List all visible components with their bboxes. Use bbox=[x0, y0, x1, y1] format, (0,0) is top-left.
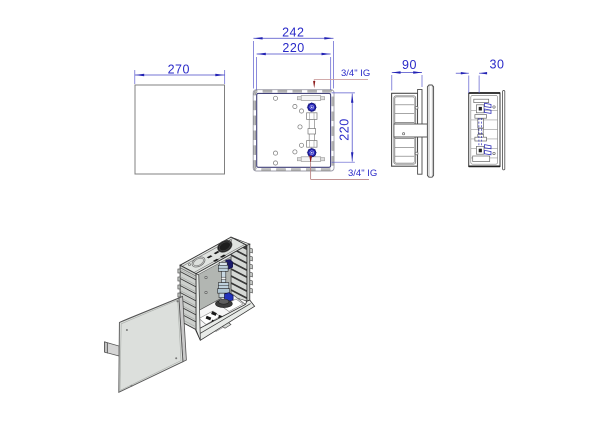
svg-text:270: 270 bbox=[168, 62, 190, 76]
svg-text:3/4" IG: 3/4" IG bbox=[348, 168, 377, 179]
svg-text:30: 30 bbox=[490, 58, 505, 72]
svg-text:242: 242 bbox=[282, 26, 304, 40]
svg-text:220: 220 bbox=[282, 41, 304, 55]
svg-text:3/4" IG: 3/4" IG bbox=[341, 68, 370, 79]
svg-text:220: 220 bbox=[337, 118, 351, 140]
svg-text:90: 90 bbox=[402, 58, 417, 72]
